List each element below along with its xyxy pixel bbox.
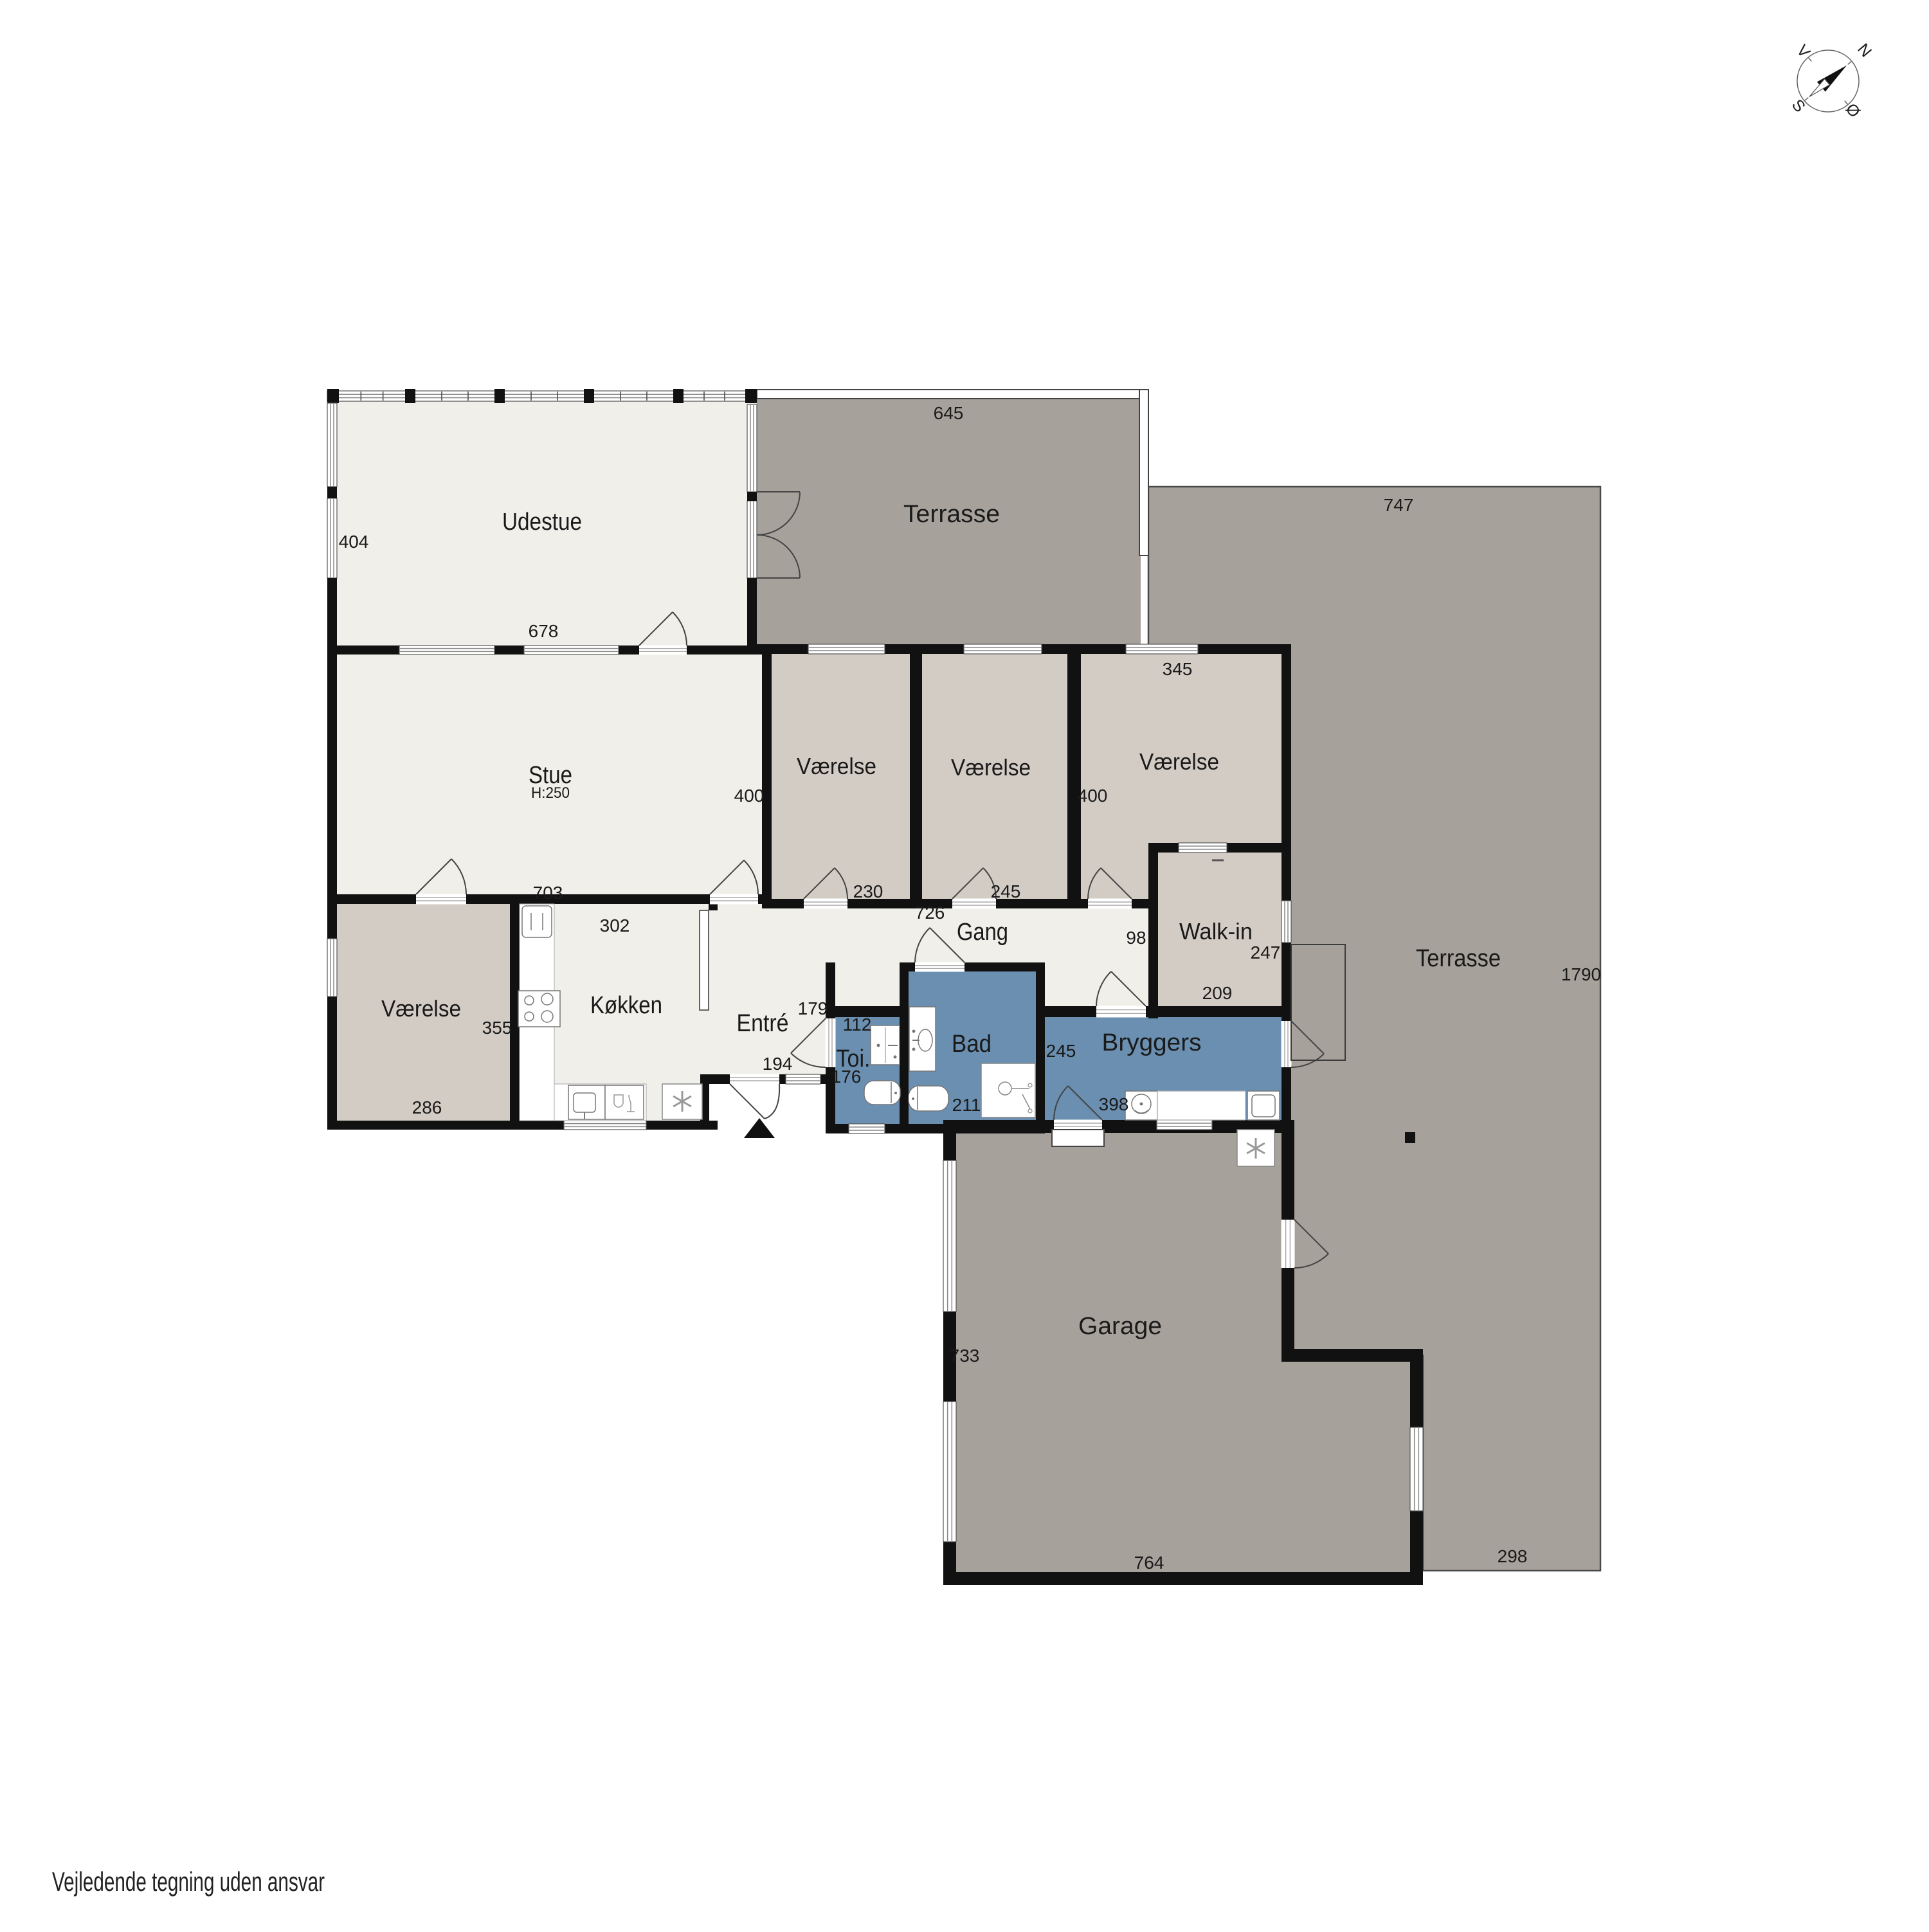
svg-text:678: 678 bbox=[529, 621, 559, 641]
svg-text:Værelse: Værelse bbox=[797, 753, 876, 779]
svg-text:Terrasse: Terrasse bbox=[903, 501, 1000, 528]
svg-text:Værelse: Værelse bbox=[951, 754, 1031, 781]
svg-text:247: 247 bbox=[1251, 943, 1281, 962]
svg-text:400: 400 bbox=[734, 786, 765, 806]
svg-text:Gang: Gang bbox=[957, 919, 1008, 946]
svg-text:112: 112 bbox=[843, 1015, 872, 1034]
svg-text:Walk-in: Walk-in bbox=[1179, 918, 1253, 944]
svg-text:Værelse: Værelse bbox=[381, 995, 461, 1022]
svg-text:726: 726 bbox=[915, 903, 945, 923]
svg-text:Udestue: Udestue bbox=[502, 509, 582, 536]
svg-text:Værelse: Værelse bbox=[1139, 748, 1219, 775]
svg-text:179: 179 bbox=[798, 998, 828, 1018]
svg-text:404: 404 bbox=[339, 532, 369, 552]
svg-text:400: 400 bbox=[1078, 786, 1108, 806]
svg-text:298: 298 bbox=[1498, 1546, 1528, 1566]
svg-text:Garage: Garage bbox=[1078, 1313, 1162, 1340]
svg-text:302: 302 bbox=[600, 916, 630, 935]
svg-text:Vejledende tegning uden ansvar: Vejledende tegning uden ansvar bbox=[52, 1866, 325, 1897]
svg-text:355: 355 bbox=[482, 1018, 512, 1038]
svg-text:Bryggers: Bryggers bbox=[1102, 1029, 1202, 1056]
svg-text:245: 245 bbox=[1046, 1041, 1076, 1061]
svg-text:645: 645 bbox=[934, 403, 964, 423]
svg-text:245: 245 bbox=[991, 881, 1021, 901]
svg-text:209: 209 bbox=[1202, 983, 1233, 1003]
svg-text:H:250: H:250 bbox=[531, 784, 570, 802]
svg-text:194: 194 bbox=[763, 1054, 793, 1074]
svg-text:703: 703 bbox=[533, 883, 563, 903]
svg-text:98: 98 bbox=[1126, 928, 1146, 948]
svg-text:398: 398 bbox=[1099, 1094, 1129, 1114]
svg-text:Entré: Entré bbox=[737, 1010, 789, 1037]
svg-text:345: 345 bbox=[1163, 659, 1193, 679]
svg-text:Køkken: Køkken bbox=[590, 992, 662, 1019]
svg-text:Bad: Bad bbox=[952, 1031, 992, 1058]
svg-text:764: 764 bbox=[1134, 1553, 1164, 1573]
svg-text:1790: 1790 bbox=[1561, 964, 1601, 984]
svg-text:211: 211 bbox=[952, 1095, 981, 1115]
svg-text:747: 747 bbox=[1384, 495, 1414, 515]
svg-text:286: 286 bbox=[412, 1097, 442, 1117]
svg-text:176: 176 bbox=[831, 1067, 862, 1087]
svg-text:230: 230 bbox=[853, 881, 883, 901]
svg-text:Terrasse: Terrasse bbox=[1416, 945, 1501, 972]
svg-text:733: 733 bbox=[950, 1346, 980, 1366]
